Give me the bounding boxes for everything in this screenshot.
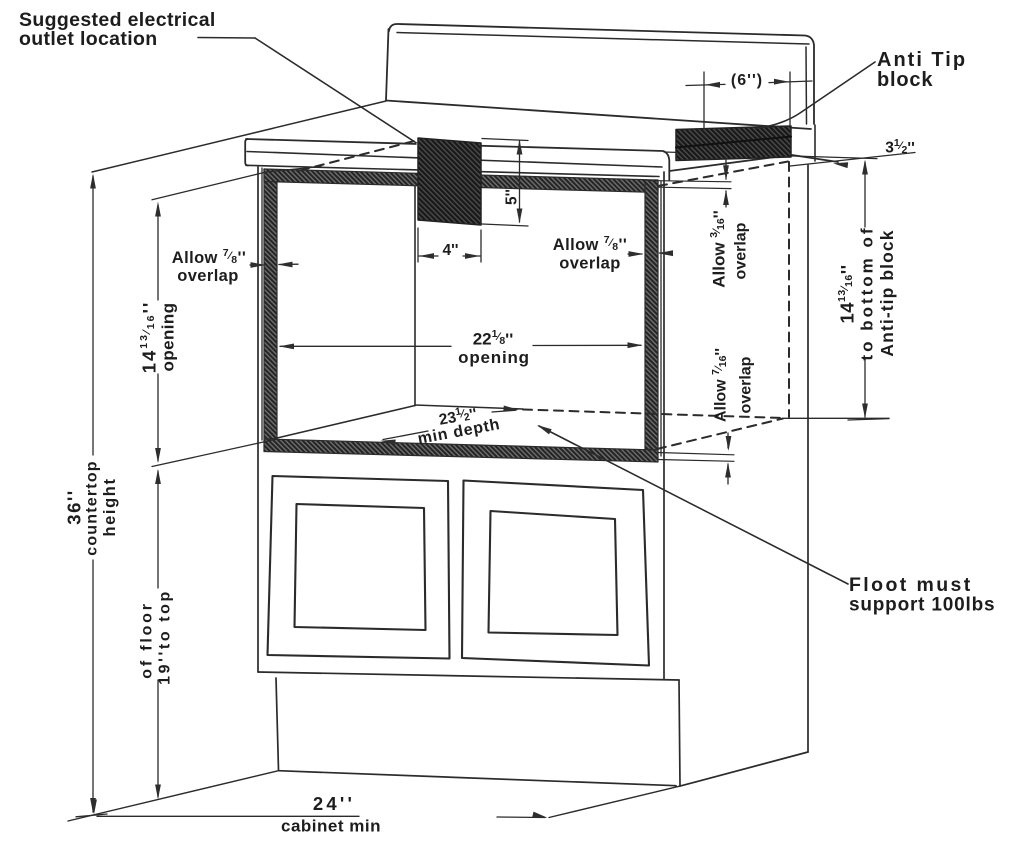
svg-text:opening: opening <box>159 303 178 372</box>
svg-text:height: height <box>101 477 119 536</box>
svg-text:4'': 4'' <box>443 242 459 259</box>
svg-text:overlap: overlap <box>733 222 750 279</box>
svg-text:overlap: overlap <box>738 356 755 413</box>
svg-text:Anti Tip: Anti Tip <box>877 49 967 71</box>
svg-text:block: block <box>877 69 933 91</box>
svg-text:of floor: of floor <box>139 601 156 679</box>
svg-text:overlap: overlap <box>559 255 621 273</box>
svg-text:5'': 5'' <box>504 189 521 205</box>
svg-text:Anti-tip block: Anti-tip block <box>877 229 897 356</box>
svg-text:36'': 36'' <box>64 489 85 524</box>
svg-text:(6''): (6'') <box>731 72 763 89</box>
svg-text:opening: opening <box>458 348 530 367</box>
svg-text:19''to top: 19''to top <box>157 589 174 685</box>
svg-text:support 100lbs: support 100lbs <box>849 595 995 616</box>
svg-text:cabinet min: cabinet min <box>281 817 381 836</box>
svg-text:Floot must: Floot must <box>849 574 973 596</box>
svg-text:countertop: countertop <box>84 460 101 556</box>
svg-text:overlap: overlap <box>177 267 239 285</box>
svg-text:to bottom of: to bottom of <box>858 225 877 360</box>
svg-text:outlet location: outlet location <box>19 28 158 50</box>
svg-text:24'': 24'' <box>313 793 355 814</box>
